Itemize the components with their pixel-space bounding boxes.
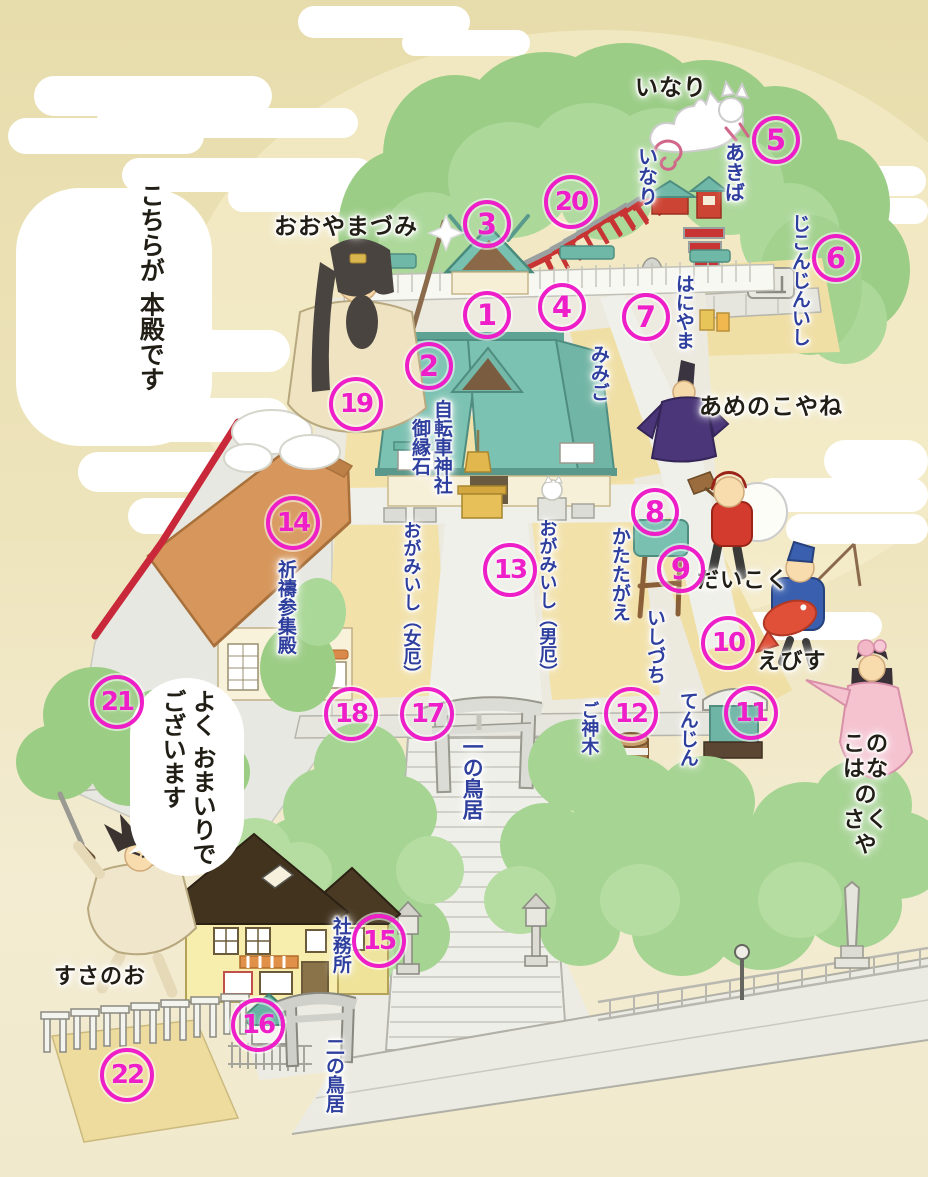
- speech-bubble: よく おまいりで ございます: [130, 678, 244, 876]
- shrine-map: よく おまいりで ございます いなりいなりあきばじこんじんいしはにやまみみごあめ…: [0, 0, 928, 1177]
- speech-bubble-text: よく おまいりで ございます: [157, 689, 217, 865]
- gold-offerings: [700, 310, 729, 331]
- map-illustration: [0, 0, 928, 1177]
- tenjin-shrine: [703, 689, 767, 758]
